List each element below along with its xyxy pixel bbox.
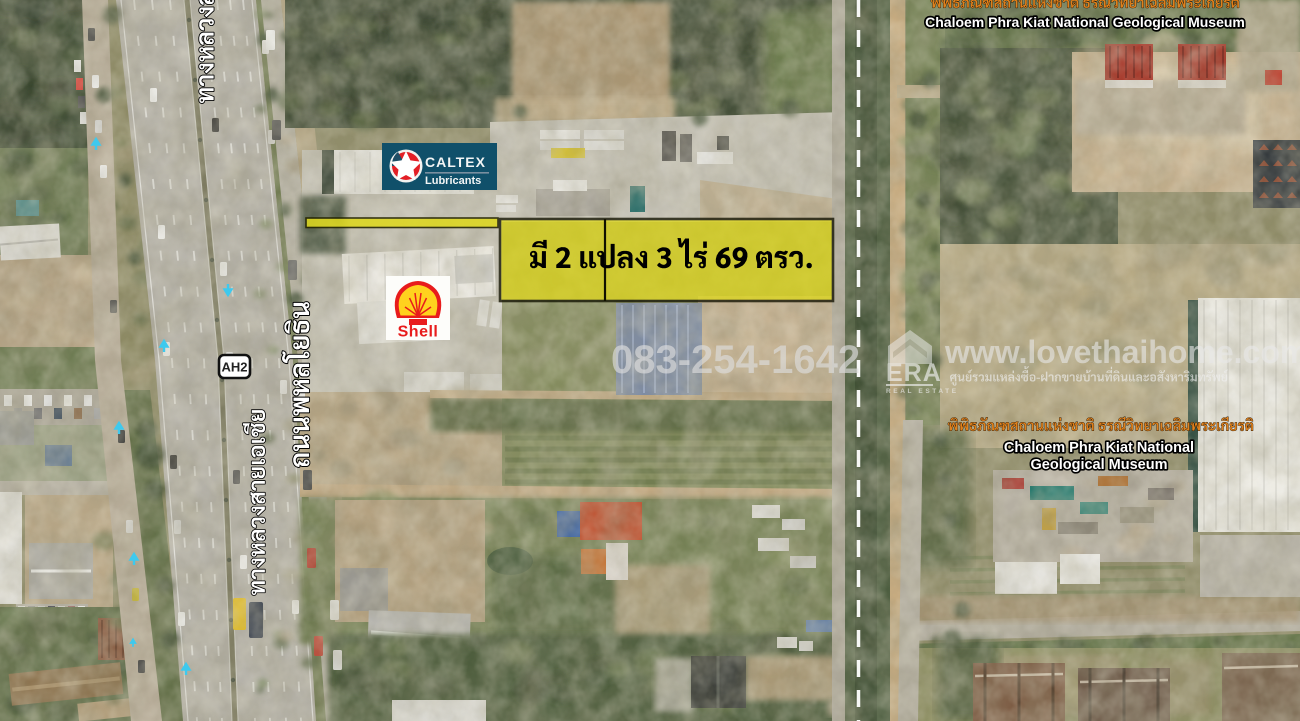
svg-text:REAL ESTATE: REAL ESTATE [886,388,959,395]
svg-text:Shell: Shell [398,324,439,341]
svg-text:Chaloem Phra Kiat National: Chaloem Phra Kiat National [1004,440,1194,456]
svg-text:Chaloem Phra Kiat National Geo: Chaloem Phra Kiat National Geological Mu… [925,14,1245,30]
svg-text:083-254-1642: 083-254-1642 [611,338,860,382]
svg-text:AH2: AH2 [221,360,247,375]
svg-text:CALTEX: CALTEX [425,154,486,170]
svg-text:ERA: ERA [886,359,942,387]
svg-text:Lubricants: Lubricants [425,175,481,187]
svg-text:www.lovethaihome.com: www.lovethaihome.com [944,334,1300,370]
svg-text:Geological Museum: Geological Museum [1031,457,1168,473]
